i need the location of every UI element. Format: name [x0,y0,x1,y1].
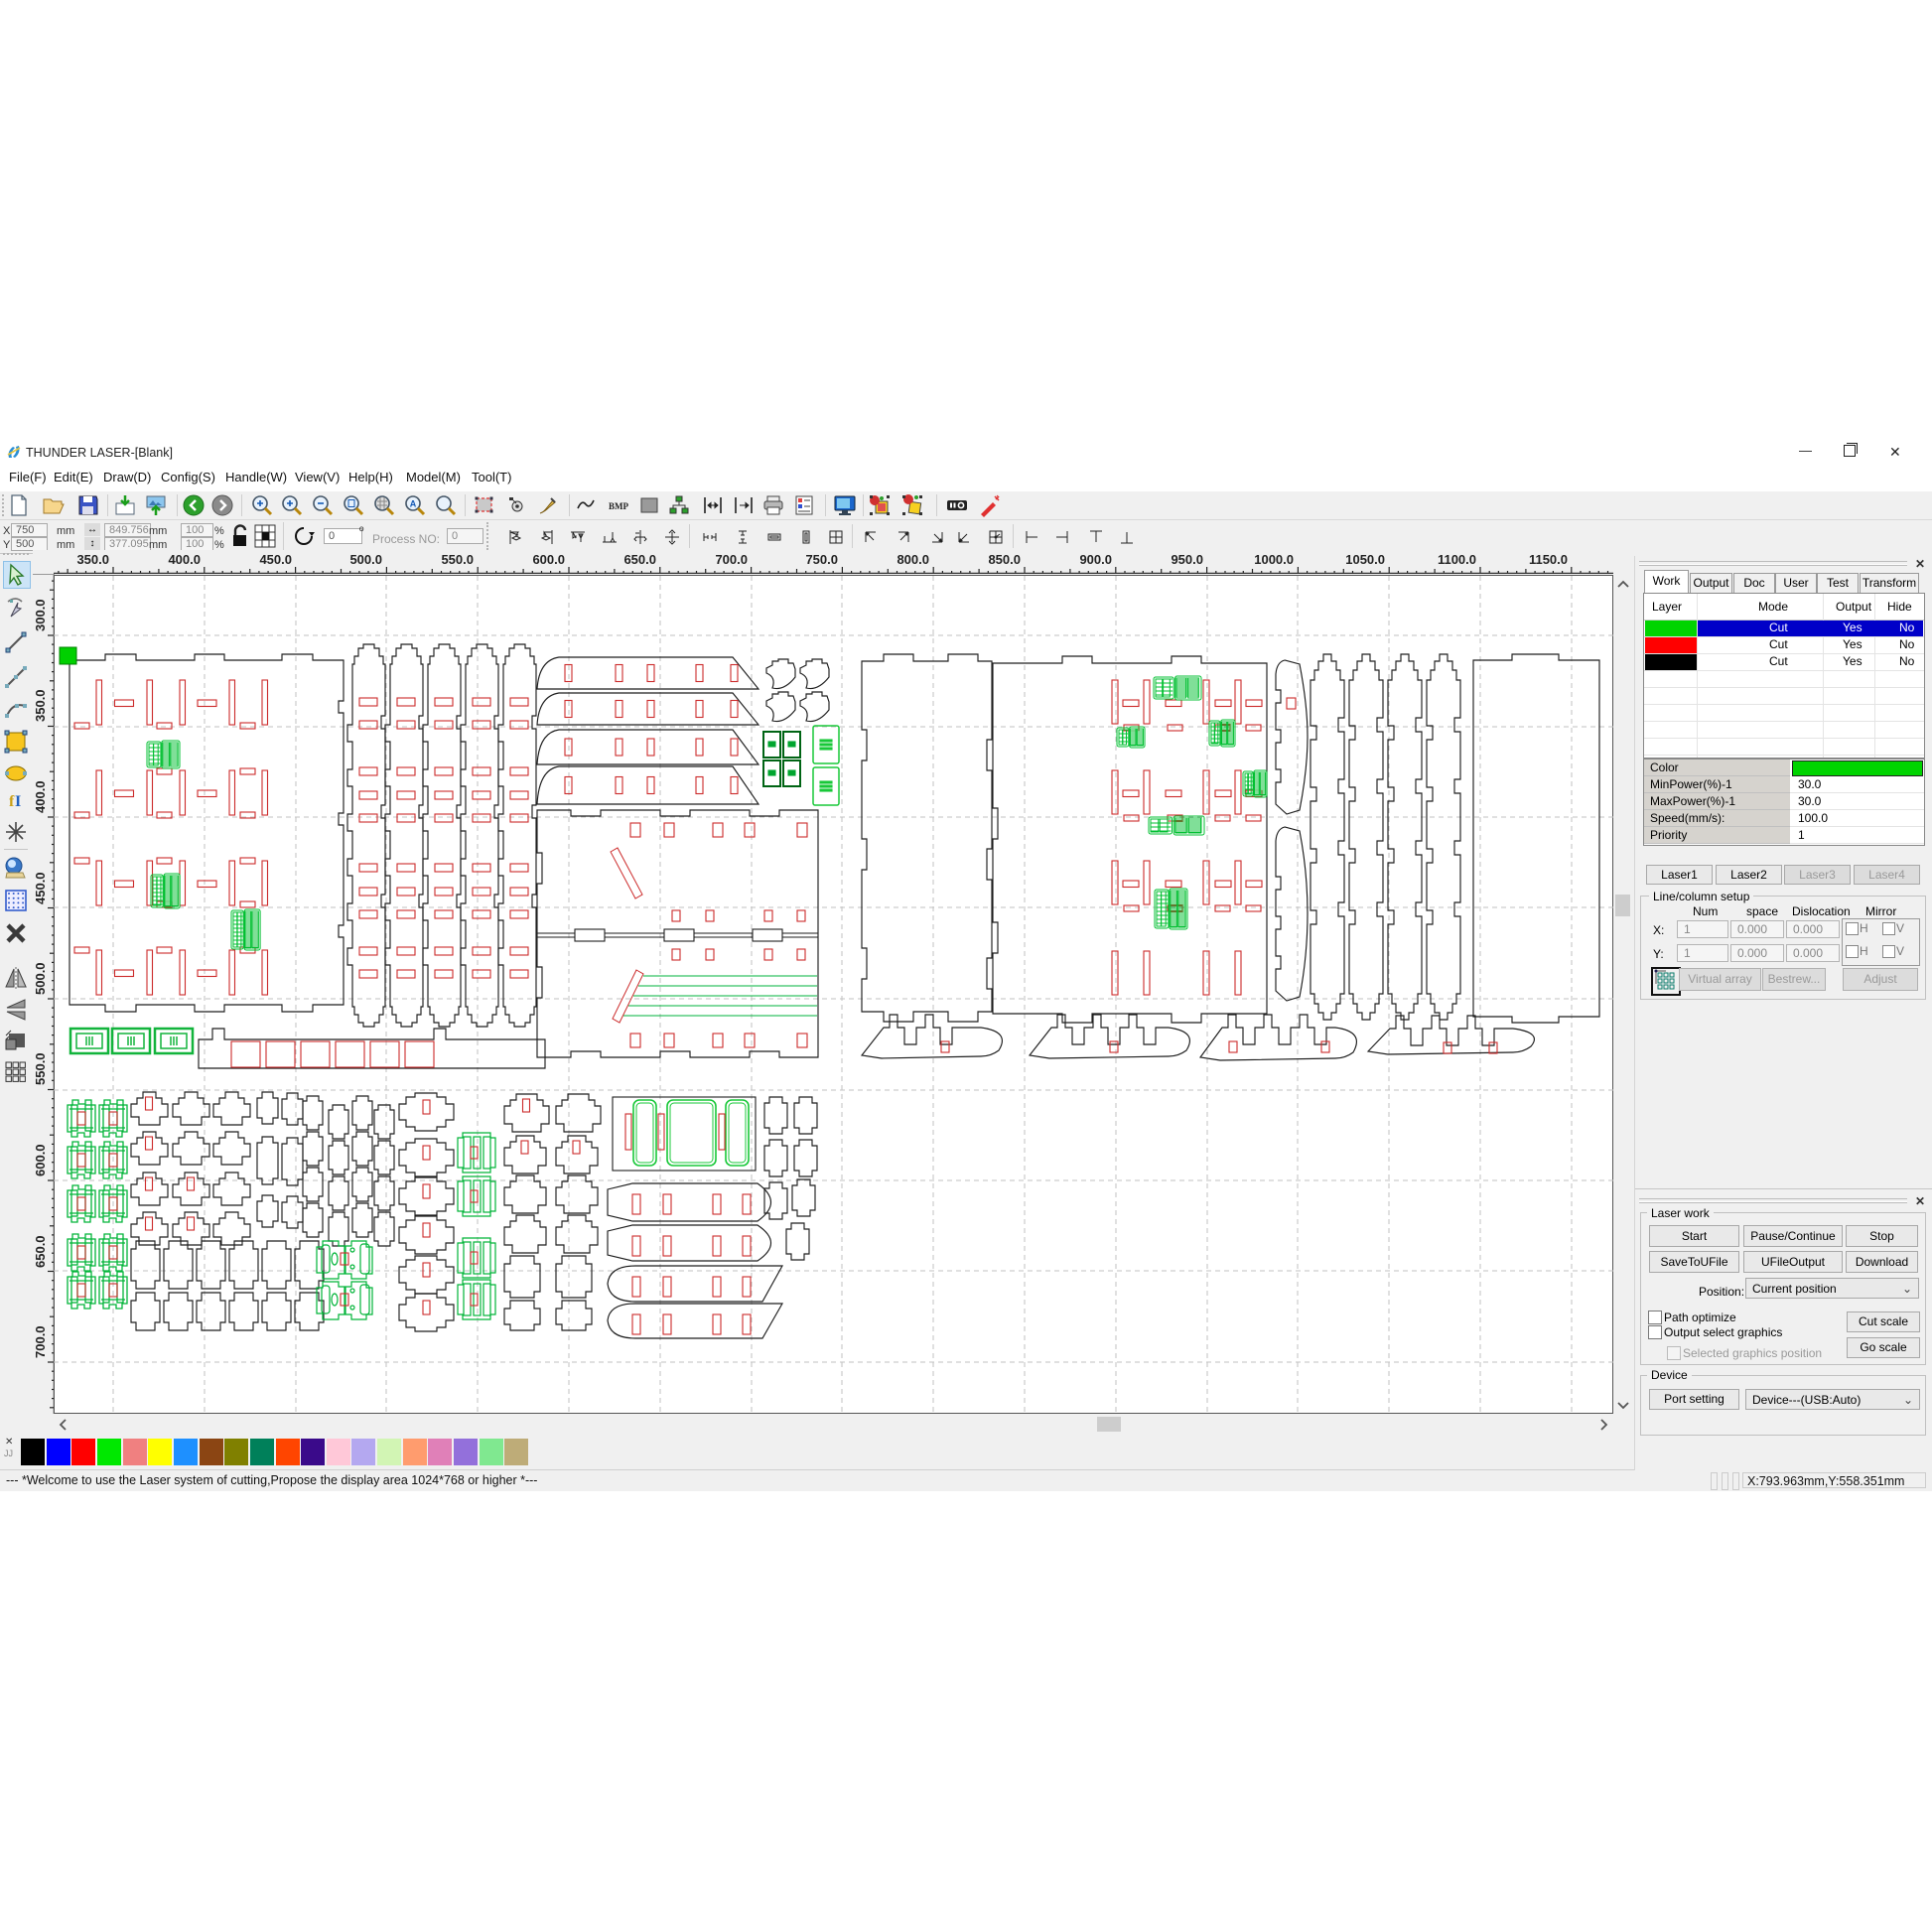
svg-text:650.0: 650.0 [623,552,656,567]
svg-text:1100.0: 1100.0 [1438,552,1476,567]
svg-text:700.0: 700.0 [715,552,748,567]
svg-text:650.0: 650.0 [33,1235,48,1268]
svg-text:950.0: 950.0 [1171,552,1203,567]
svg-text:550.0: 550.0 [441,552,474,567]
svg-text:600.0: 600.0 [532,552,565,567]
svg-text:400.0: 400.0 [33,780,48,813]
svg-text:300.0: 300.0 [33,599,48,631]
svg-text:BMP: BMP [609,501,628,511]
svg-text:450.0: 450.0 [259,552,292,567]
svg-text:800.0: 800.0 [897,552,929,567]
svg-text:500.0: 500.0 [349,552,382,567]
svg-text:450.0: 450.0 [33,872,48,904]
svg-text:700.0: 700.0 [33,1325,48,1358]
svg-text:1050.0: 1050.0 [1345,552,1385,567]
svg-text:I: I [15,793,21,810]
svg-text:400.0: 400.0 [168,552,201,567]
svg-text:600.0: 600.0 [33,1144,48,1176]
svg-text:500.0: 500.0 [33,962,48,995]
svg-text:900.0: 900.0 [1079,552,1112,567]
svg-text:1150.0: 1150.0 [1529,552,1568,567]
svg-text:350.0: 350.0 [33,689,48,722]
svg-text:1000.0: 1000.0 [1254,552,1294,567]
svg-text:550.0: 550.0 [33,1052,48,1085]
svg-text:850.0: 850.0 [988,552,1021,567]
svg-text:A: A [410,499,417,509]
svg-text:350.0: 350.0 [76,552,109,567]
svg-text:750.0: 750.0 [805,552,838,567]
